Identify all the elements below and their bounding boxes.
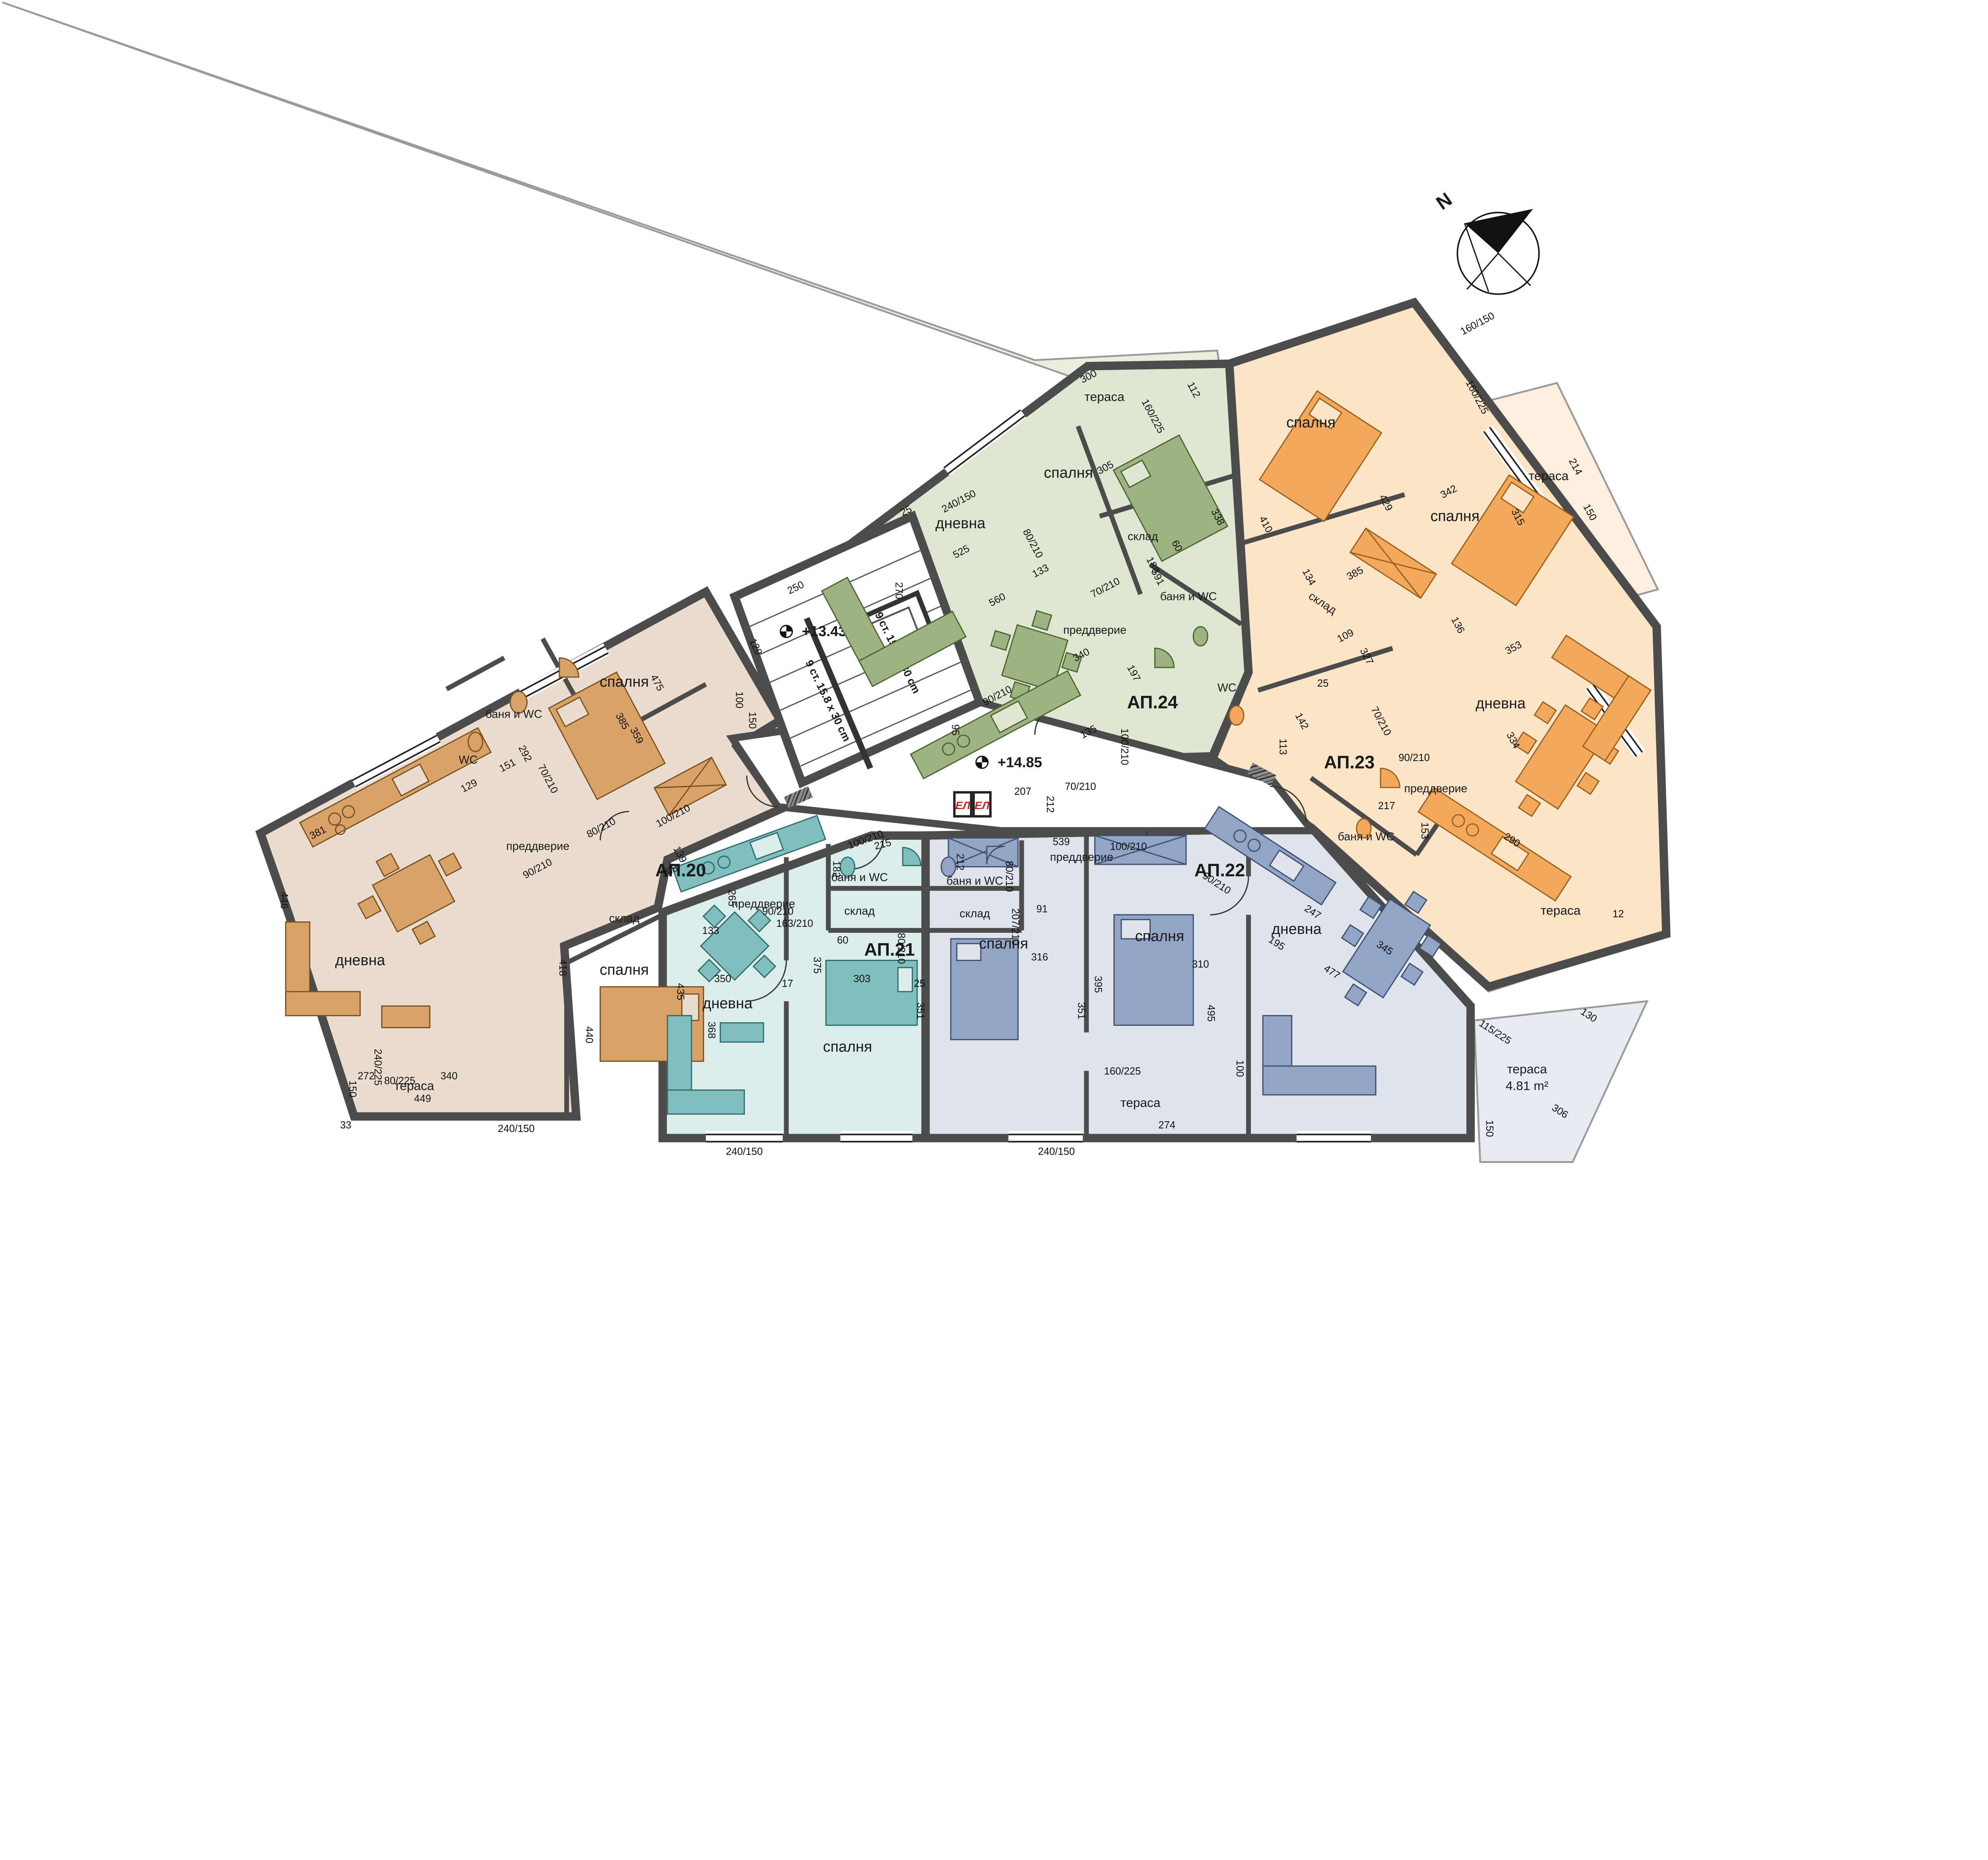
dim: 418 [557, 959, 568, 976]
dim: 368 [706, 1021, 717, 1039]
dim: 240/150 [726, 1146, 763, 1157]
window [1008, 1131, 1083, 1144]
dim: 449 [414, 1093, 431, 1105]
room-label: баня и WC [1338, 831, 1395, 843]
room-label: спалня [823, 1038, 872, 1055]
dim: 90/210 [762, 906, 793, 917]
dim: 303 [853, 973, 870, 984]
dim: 310 [1192, 959, 1209, 970]
dim: 91 [1036, 904, 1048, 915]
room-label: WC [1217, 681, 1237, 694]
room-label: дневна [703, 995, 753, 1012]
dim: 160/150 [1459, 310, 1497, 337]
window [706, 1131, 782, 1144]
toilet [1193, 627, 1208, 646]
dim: 160/225 [1104, 1066, 1141, 1077]
room-label: спалня [1286, 414, 1336, 431]
corridor-level-text: +14.85 [998, 754, 1042, 770]
coffee-table [720, 1023, 764, 1042]
dim: 153 [1419, 822, 1430, 839]
dim: 100 [1234, 1060, 1245, 1077]
dim: 80/225 [384, 1075, 415, 1086]
apartment-label-ap21: АП.21 [864, 939, 915, 959]
terrace-ap22-corner [1474, 1001, 1647, 1162]
dim: 100 [734, 691, 745, 709]
room-label: преддверие [506, 840, 569, 853]
room-label: склад [845, 905, 875, 918]
dim: 133 [702, 925, 719, 936]
dim: 274 [1158, 1120, 1175, 1131]
dim: 316 [1031, 951, 1048, 963]
dim: 60 [837, 935, 848, 946]
dim: 240/150 [498, 1123, 535, 1134]
room-label: склад [1128, 530, 1158, 543]
dim: 17 [782, 978, 793, 989]
dim: 100/210 [1119, 728, 1130, 765]
dim: 240/150 [1038, 1146, 1075, 1157]
terrace-label: тераса [1085, 389, 1125, 404]
dim: 351 [915, 1002, 926, 1019]
toilet [941, 857, 955, 876]
dim: 270 [893, 582, 904, 599]
room-label: спалня [979, 935, 1028, 951]
dim: 150 [1484, 1120, 1495, 1137]
dim: 207/210 [1010, 909, 1021, 946]
terrace-label: тераса [1541, 903, 1581, 918]
el-shaft-a-label: ЕЛ [955, 799, 971, 812]
dim: 70/210 [1065, 781, 1096, 792]
room-label: преддверие [1050, 851, 1113, 864]
dim: 80/210 [1004, 861, 1015, 892]
window [841, 1131, 912, 1144]
room-label: преддверие [1404, 782, 1468, 795]
dim: 375 [812, 957, 823, 974]
room-label: склад [609, 912, 640, 925]
dim: 33 [340, 1120, 351, 1131]
dim: 340 [441, 1070, 458, 1081]
dim: 80/210 [895, 933, 907, 964]
pillow [898, 968, 912, 992]
terrace-area-label: 4.81 m² [1506, 1079, 1548, 1093]
floor-plan-canvas: ЕЛ ЕЛ +13.43 +14.85 9 ст. 15.8 x 30 cm 9… [0, 0, 1988, 1405]
sofa [286, 992, 360, 1015]
dim: 150 [747, 712, 758, 729]
sofa [1263, 1066, 1376, 1095]
el-shaft-b-label: ЕЛ [975, 799, 990, 812]
dim: 212 [954, 853, 965, 870]
dim: 90/210 [1399, 752, 1430, 763]
room-label: спалня [1044, 464, 1093, 481]
dim: 12 [1613, 909, 1624, 920]
dim: 25 [1317, 678, 1329, 689]
room-label: преддверие [1063, 624, 1126, 637]
dim: 95 [949, 724, 961, 736]
dim: 217 [1378, 800, 1395, 812]
room-label: спалня [600, 673, 649, 690]
apartment-label-ap24: АП.24 [1127, 692, 1178, 712]
terrace-label: тераса [1529, 469, 1569, 483]
dim: 440 [583, 1026, 594, 1043]
window [1297, 1131, 1371, 1144]
north-label: N [1432, 188, 1456, 214]
dim: 163/210 [776, 918, 813, 929]
terrace-label: тераса [1507, 1062, 1547, 1076]
dim: 435 [675, 983, 686, 1000]
room-label: баня и WC [485, 708, 542, 721]
room-label: баня и WC [1160, 590, 1217, 603]
room-label: спалня [1431, 507, 1480, 524]
compass-needle-icon [1465, 209, 1533, 253]
compass: N [1432, 188, 1539, 294]
room-label: спалня [1135, 928, 1184, 944]
sofa [668, 1090, 744, 1114]
dim: 446 [279, 892, 290, 909]
toilet [1229, 706, 1244, 725]
dim: 25 [914, 978, 926, 989]
room-label: дневна [335, 952, 385, 969]
dim: 207 [1014, 786, 1031, 797]
terrace-label: тераса [1120, 1095, 1161, 1110]
pillow [957, 944, 980, 960]
dim: 150 [347, 1080, 358, 1097]
room-label: склад [959, 907, 990, 920]
dim: 212 [1044, 796, 1056, 813]
dim: 350 [714, 973, 731, 984]
coffee-table [382, 1006, 430, 1027]
room-label: дневна [1475, 695, 1526, 711]
dim: 395 [1093, 976, 1104, 993]
terrace-ap24 [2, 2, 1229, 432]
toilet [468, 732, 483, 751]
dim: 351 [1076, 1002, 1087, 1019]
dim: 182 [831, 861, 842, 878]
dim: 265 [726, 889, 738, 907]
room-label: спалня [600, 961, 649, 978]
dim: 113 [1277, 739, 1289, 755]
dim: 539 [1053, 837, 1070, 848]
room-label: дневна [1272, 920, 1322, 937]
room-label: дневна [936, 515, 986, 531]
dim: 495 [1205, 1005, 1216, 1022]
room-label: WC [459, 753, 478, 766]
dim: 100/210 [1110, 841, 1147, 852]
dim: 240/225 [372, 1049, 383, 1086]
room-label: баня и WC [946, 875, 1003, 887]
apartment-label-ap23: АП.23 [1324, 752, 1375, 772]
